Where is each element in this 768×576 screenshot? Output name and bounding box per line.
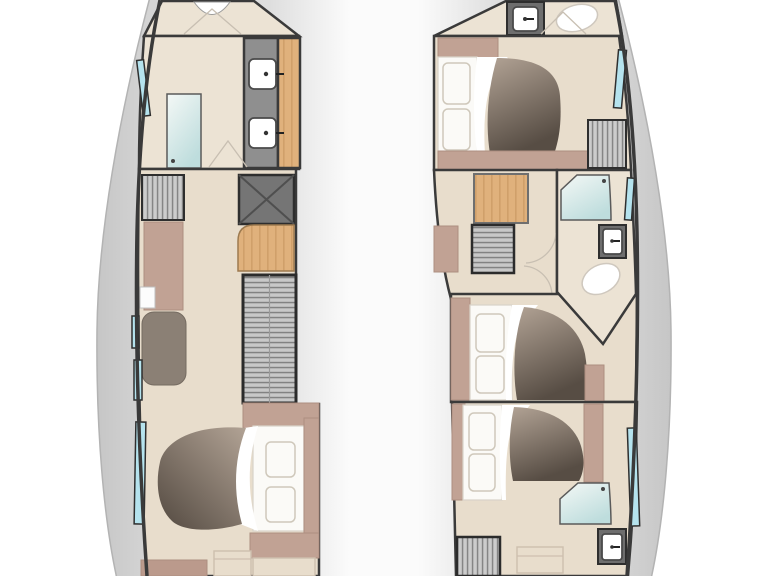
side-cabinet (434, 226, 458, 272)
bed-foot-cabinet (250, 533, 319, 558)
vented-cabinet (457, 537, 500, 576)
drain-2 (264, 131, 268, 135)
vanity-wood-top (278, 38, 300, 168)
bench (214, 551, 251, 576)
shower-drain (602, 179, 606, 183)
catamaran-floorplan (0, 0, 768, 576)
starboard-hull (434, 0, 640, 576)
engine-hatch (239, 175, 294, 224)
bed-head-shelf (438, 38, 498, 59)
companionway-stairs (243, 275, 296, 403)
bed-side-shelf (451, 298, 470, 400)
vented-cabinet (588, 120, 626, 168)
shower-drain (171, 159, 175, 163)
bed-pillow-area (438, 57, 477, 154)
aft-locker (141, 560, 207, 576)
bed-side-shelf (585, 365, 604, 402)
port-hull (132, 0, 319, 576)
bow-sink-unit (507, 2, 544, 35)
vanity-sink-1 (249, 59, 276, 89)
vented-cabinet (142, 175, 184, 220)
bed-side-shelf (584, 404, 603, 482)
galley-seat (142, 312, 186, 385)
shower (167, 94, 201, 168)
shower-drain (601, 487, 605, 491)
galley-sink (140, 287, 155, 308)
floorplan-stage (0, 0, 768, 576)
drain-1 (264, 72, 268, 76)
bench (517, 547, 563, 573)
sink-unit (599, 225, 626, 258)
vented-cabinet (472, 225, 514, 273)
bench (253, 558, 315, 576)
vanity-sink-2 (249, 118, 276, 148)
wood-steps (238, 225, 294, 271)
sink-unit (598, 529, 626, 564)
wood-stairs (474, 174, 528, 223)
bed-side-shelf (304, 418, 319, 534)
